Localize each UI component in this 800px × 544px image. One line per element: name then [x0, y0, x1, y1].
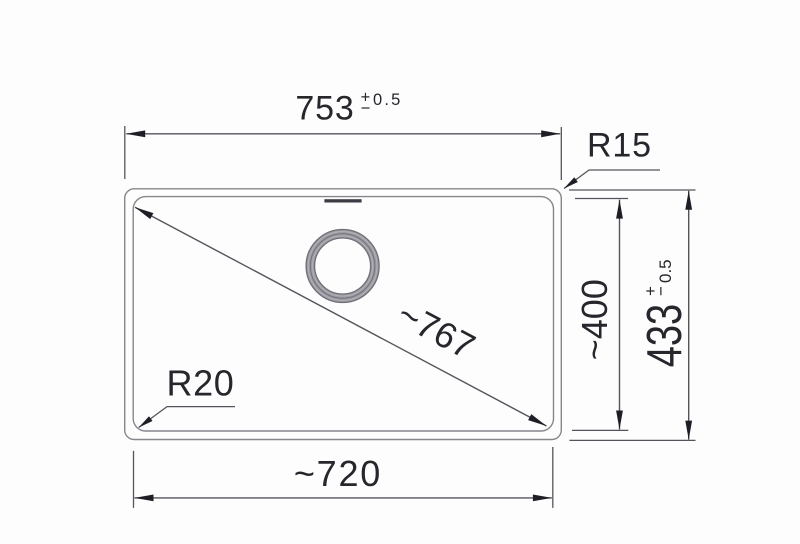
svg-text:~400: ~400 — [574, 279, 615, 360]
svg-text:0.5: 0.5 — [373, 91, 403, 109]
svg-text:0.5: 0.5 — [656, 259, 675, 283]
svg-text:−: − — [361, 100, 371, 118]
svg-text:~767: ~767 — [391, 293, 482, 367]
svg-text:433: 433 — [637, 304, 692, 367]
svg-text:753: 753 — [295, 90, 354, 128]
svg-text:R15: R15 — [587, 126, 652, 164]
svg-text:R20: R20 — [167, 363, 235, 404]
svg-text:~720: ~720 — [294, 453, 382, 494]
svg-text:−: − — [652, 286, 671, 296]
